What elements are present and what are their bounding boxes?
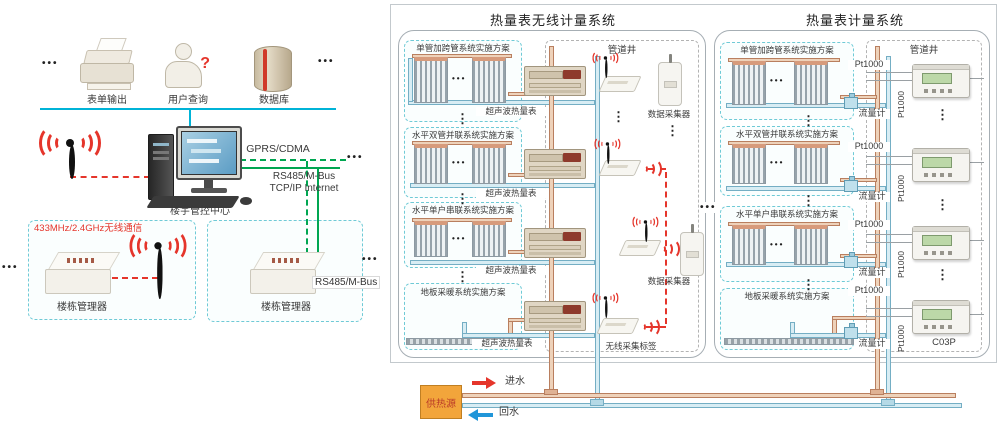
vertical-ellipsis: ⋮ xyxy=(456,192,469,205)
pt1000-vertical-label: Pt1000 xyxy=(896,242,906,278)
wireless-waves-icon xyxy=(660,240,678,258)
ultrasonic-meter-label: 超声波热量表 xyxy=(476,266,546,275)
sensor-wire xyxy=(970,314,984,315)
ultrasonic-meter-device xyxy=(524,228,586,258)
gprs-label: GPRS/CDMA xyxy=(243,144,313,156)
wireless-tag-device xyxy=(598,160,641,176)
building-manager-label: 楼栋管理器 xyxy=(246,302,326,313)
inflow-label: 进水 xyxy=(500,376,530,387)
data-collector-label: 数据采集器 xyxy=(638,277,700,286)
radiator xyxy=(732,144,766,184)
pipe-well-label: 管道井 xyxy=(866,46,982,56)
pt1000-label: Pt1000 xyxy=(848,142,890,152)
monitor-base xyxy=(191,188,227,193)
ellipsis: ••• xyxy=(770,240,784,249)
radiator xyxy=(472,221,506,257)
vertical-ellipsis: ⋮ xyxy=(612,110,625,123)
vertical-ellipsis: ⋮ xyxy=(802,114,815,127)
pipe-tee xyxy=(870,389,884,395)
pt1000-label: Pt1000 xyxy=(848,60,890,70)
scheme-label-4: 地板采暖系统实施方案 xyxy=(720,292,854,301)
wireless-waves-icon xyxy=(640,318,658,336)
vertical-ellipsis: ⋮ xyxy=(456,270,469,283)
wireless-tag-device xyxy=(596,318,639,334)
printer-icon xyxy=(78,38,136,92)
flow-meter-label: 流量计 xyxy=(854,109,890,119)
control-center-label: 楼宇管控中心 xyxy=(152,206,248,217)
scheme-label-3: 水平单户串联系统实施方案 xyxy=(404,206,522,215)
return-pipe xyxy=(408,58,413,102)
vertical-ellipsis: ⋮ xyxy=(802,194,815,207)
ellipsis: ••• xyxy=(318,56,335,67)
lan-line xyxy=(40,108,336,110)
report-output-label: 表单输出 xyxy=(72,95,142,106)
vertical-ellipsis: ⋮ xyxy=(936,108,949,121)
vertical-ellipsis: ⋮ xyxy=(456,112,469,125)
antenna-icon xyxy=(129,228,188,281)
scheme-label-2: 水平双管并联系统实施方案 xyxy=(404,131,522,140)
tcpip-label: TCP/IP Internet xyxy=(262,183,346,194)
ellipsis: ••• xyxy=(362,254,379,265)
flow-meter-device xyxy=(844,327,858,339)
scheme-label-4: 地板采暖系统实施方案 xyxy=(404,288,522,297)
sensor-wire xyxy=(970,162,984,163)
radiator xyxy=(414,221,448,257)
wireless-tag-label: 无线采集标签 xyxy=(598,342,664,351)
vertical-ellipsis: ⋮ xyxy=(802,278,815,291)
data-collector-device xyxy=(658,62,682,106)
flow-meter-device xyxy=(844,97,858,109)
pt1000-vertical-label: Pt1000 xyxy=(896,316,906,352)
radiator xyxy=(732,61,766,105)
heat-calculator-device xyxy=(912,226,970,260)
vertical-ellipsis: ⋮ xyxy=(666,124,679,137)
radiator xyxy=(794,61,828,105)
computer-monitor-icon xyxy=(176,126,242,180)
vertical-ellipsis: ⋮ xyxy=(936,268,949,281)
radiator xyxy=(794,225,828,265)
radiator xyxy=(794,144,828,184)
scheme-label-1: 单管加跨管系统实施方案 xyxy=(720,46,854,55)
sensor-wire xyxy=(866,80,912,81)
flow-meter-device xyxy=(844,180,858,192)
pipe-tee xyxy=(881,399,895,406)
sensor-wire xyxy=(970,240,984,241)
wireless-waves-icon xyxy=(642,160,660,178)
rs485-chip-label: RS485/M-Bus xyxy=(312,276,380,289)
wireless-tag-device xyxy=(618,240,661,256)
ellipsis: ••• xyxy=(770,76,784,85)
radiator xyxy=(472,57,506,103)
flow-meter-label: 流量计 xyxy=(854,339,890,349)
database-label: 数据库 xyxy=(248,95,300,106)
pipe-tee xyxy=(544,389,558,395)
pt1000-label: Pt1000 xyxy=(848,286,890,296)
scheme-label-1: 单管加跨管系统实施方案 xyxy=(404,44,522,53)
sensor-wire xyxy=(866,156,912,157)
radiator xyxy=(414,144,448,184)
outflow-arrow-icon xyxy=(462,409,478,421)
ellipsis: ••• xyxy=(770,158,784,167)
sensor-wire xyxy=(866,308,912,309)
heat-calculator-device xyxy=(912,148,970,182)
floor-heating-coil xyxy=(724,338,854,345)
data-collector-device xyxy=(680,232,704,276)
scheme-label-2: 水平双管并联系统实施方案 xyxy=(720,130,854,139)
heat-source-box: 供热源 xyxy=(420,385,462,419)
sensor-wire xyxy=(866,234,912,235)
ellipsis: ••• xyxy=(452,158,466,167)
antenna-icon xyxy=(592,290,619,314)
rs485-label: RS485/M-Bus xyxy=(266,171,342,182)
flow-meter-label: 流量计 xyxy=(854,192,890,202)
flow-meter-device xyxy=(844,256,858,268)
building-manager-device xyxy=(45,252,117,296)
mouse-icon xyxy=(240,197,252,205)
sensor-wire xyxy=(866,72,912,73)
sensor-wire xyxy=(970,78,984,79)
supply-riser xyxy=(549,46,554,396)
pipe-well-label: 管道井 xyxy=(545,46,699,56)
heat-source-label: 供热源 xyxy=(426,395,456,410)
wired-system-title: 热量表计量系统 xyxy=(742,10,968,29)
scheme-label-3: 水平单户串联系统实施方案 xyxy=(720,210,854,219)
ultrasonic-meter-label: 超声波热量表 xyxy=(476,107,546,116)
pt1000-label: Pt1000 xyxy=(848,220,890,230)
ellipsis: ••• xyxy=(452,74,466,83)
antenna-icon xyxy=(38,124,102,182)
building-manager-device xyxy=(250,252,322,296)
pt1000-vertical-label: Pt1000 xyxy=(896,82,906,118)
device-model-label: C03P xyxy=(926,338,962,348)
ellipsis: ••• xyxy=(700,202,717,213)
computer-tower-icon xyxy=(148,134,174,200)
return-riser xyxy=(595,56,600,408)
ellipsis: ••• xyxy=(2,262,19,273)
wireless-system-title: 热量表无线计量系统 xyxy=(428,10,678,29)
antenna-icon xyxy=(594,136,621,160)
user-query-label: 用户查询 xyxy=(156,95,220,106)
sensor-wire xyxy=(866,164,912,165)
ultrasonic-meter-device xyxy=(524,149,586,179)
radiator xyxy=(732,225,766,265)
wireless-433-label: 433MHz/2.4GHz无线通信 xyxy=(34,224,164,234)
flow-meter-label: 流量计 xyxy=(854,268,890,278)
heat-calculator-device xyxy=(912,64,970,98)
ellipsis: ••• xyxy=(42,58,59,69)
user-query-icon: ? xyxy=(162,42,210,94)
pipe-tee xyxy=(590,399,604,406)
vertical-ellipsis: ⋮ xyxy=(936,198,949,211)
outflow-label: 回水 xyxy=(494,407,524,418)
radiator xyxy=(472,144,506,184)
heat-calculator-device xyxy=(912,300,970,334)
question-mark-icon: ? xyxy=(200,55,210,73)
pt1000-vertical-label: Pt1000 xyxy=(896,166,906,202)
antenna-icon xyxy=(632,214,659,238)
wireless-tag-device xyxy=(598,76,641,92)
ultrasonic-meter-device xyxy=(524,66,586,96)
diagram-heat-metering-system: ••• ••• 表单输出 ? 用户查询 数据库 楼宇管控中心 GPRS/CDMA… xyxy=(0,0,1000,436)
radiator xyxy=(414,57,448,103)
ultrasonic-meter-device xyxy=(524,301,586,331)
data-collector-label: 数据采集器 xyxy=(638,110,700,119)
ultrasonic-meter-label: 超声波热量表 xyxy=(472,339,542,348)
database-icon xyxy=(254,46,292,92)
ellipsis: ••• xyxy=(347,152,364,163)
ellipsis: ••• xyxy=(452,234,466,243)
building-manager-label: 楼栋管理器 xyxy=(46,302,118,313)
ultrasonic-meter-label: 超声波热量表 xyxy=(476,189,546,198)
